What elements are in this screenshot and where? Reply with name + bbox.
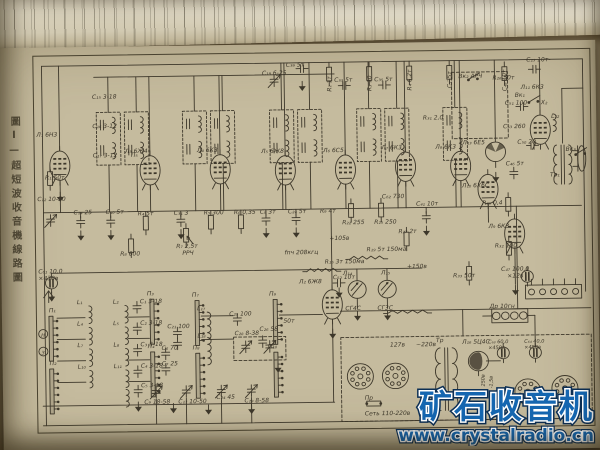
component-label: С₂₆ 58 <box>259 326 278 333</box>
component-label: С₃₅ 5т <box>374 76 393 83</box>
component-label: П₅ <box>131 152 139 159</box>
component-label: П₂ <box>50 360 58 367</box>
component-label: ×450в <box>488 345 505 351</box>
component-label: Вк₂ АРЧ <box>458 73 482 80</box>
component-label: Др 10гн <box>489 303 515 310</box>
watermark-url[interactable]: www.crystalradio.cn <box>398 426 594 446</box>
component-label: П₈ <box>193 344 201 351</box>
component-label: ×430в <box>38 275 59 282</box>
component-label: С₂₈ 8-38 <box>234 330 259 337</box>
figure-caption: 圖Ⅰ—超短波收音機線路圖 <box>6 116 23 286</box>
component-label: Л₁₅ <box>380 269 391 276</box>
component-label: С₄ 3-18 <box>141 362 163 369</box>
component-label: R₉ 4т <box>320 208 336 215</box>
component-label: П₃ <box>147 290 155 297</box>
component-label: R₁₆ 3т 150ма <box>325 258 365 265</box>
component-label: С₆₂ 730 <box>382 193 405 200</box>
component-label: С₁₇ 3-12 <box>93 152 118 159</box>
component-label: С₁₆ 3-12 <box>92 123 117 130</box>
component-label: 127в <box>390 342 406 349</box>
component-label: С₃₁ 3 <box>174 210 189 217</box>
component-label: СГ3С <box>377 305 394 312</box>
component-label: С₅₀ 20 <box>517 139 536 146</box>
watermark-title: 矿石收音机 <box>419 387 594 426</box>
component-label: R₂ 1т <box>326 76 333 92</box>
component-label: R₃ 10 <box>366 75 373 91</box>
component-label: R₂₆ 50т <box>492 74 515 81</box>
component-label: L₁ <box>77 299 83 306</box>
component-label: С₂₅ 100 <box>229 310 252 317</box>
component-label: Тр <box>436 337 444 344</box>
component-label: +105в <box>329 235 350 242</box>
component-label: R₃₂ 100 <box>495 242 518 249</box>
component-label: С₃ 3-18 <box>140 341 162 348</box>
component-label: Л₁₁ 6К3 <box>520 84 544 91</box>
component-label: С₆ 70 <box>162 345 178 352</box>
component-label: П₉ <box>269 291 277 298</box>
component-label: С₁₇ 10-50 <box>178 398 207 405</box>
component-label: С₁₀ 5т <box>106 209 125 216</box>
component-label: С₈ 3т <box>260 209 276 216</box>
component-label: R₁ 50т <box>45 174 65 181</box>
component-label: Вк₃ <box>566 146 577 153</box>
component-label: R₁₉ 5т 150ма <box>367 246 407 253</box>
component-label: С₅₂ 10т <box>333 274 356 281</box>
component-label: С₁₂ 10-50 <box>37 196 66 203</box>
component-label: Л₁₆ 5Ц4С <box>461 338 491 345</box>
component-label: Х₂ <box>540 99 548 106</box>
component-label: R₈ 600 <box>120 250 140 257</box>
component-label: С₂₃ 10т- <box>526 56 550 63</box>
component-label: С₄₁ 10т <box>416 200 439 207</box>
component-label: Л₆ 6С5 <box>322 147 344 154</box>
component-label: Тр₁ <box>550 171 561 178</box>
component-label: П₇ <box>192 292 200 299</box>
component-label: L₅ <box>113 320 119 327</box>
component-label: L₂ <box>113 299 119 306</box>
component-label: R₃₃ 50т <box>453 272 476 279</box>
component-label: Л₇ 6К3 <box>380 144 402 151</box>
watermark-svg: 矿石收音机 矿石收音机 www.crystalradio.cn www.crys… <box>364 382 600 446</box>
component-label: С₂₄ 45 <box>216 394 235 401</box>
component-label: L₈ <box>113 342 119 349</box>
component-label: С₁₅ 3-18 <box>92 94 117 101</box>
component-label: С₁₉ 6-25 <box>262 70 287 77</box>
component-label: +150в <box>407 263 428 270</box>
component-label: Л₁₃ 6Е5 <box>461 139 485 146</box>
watermark: 矿石收音机 矿石收音机 www.crystalradio.cn www.crys… <box>364 382 600 450</box>
component-label: R₅ 300 <box>204 209 224 216</box>
component-label: Л₁ 6Н3 <box>35 132 57 139</box>
schematic-frame: Л₁ 6Н3Л₃ 6Ж4Л₄ 6К3Л₅ 6Ж8Л₆ 6С5Л₇ 6К3Л₈ 6… <box>32 48 595 434</box>
component-label: Л₄ 6К3 <box>196 147 218 154</box>
component-label: R₃₁ 2,0 <box>423 114 444 121</box>
component-label: R₃₅ 0,4 <box>482 200 503 207</box>
component-label: L₁₀ <box>78 364 87 371</box>
component-label: С₅ 3-18 <box>141 382 163 389</box>
component-label: Л₁₀ 6Х6С <box>461 182 490 189</box>
component-label: R₄ 5т <box>138 210 154 217</box>
component-label: С₇′ 5т <box>446 71 453 88</box>
component-label: С₂₁ 100 <box>167 323 190 330</box>
component-label: С₅₁ 100 <box>505 100 528 107</box>
component-label: С₁ 3-18 <box>140 298 162 305</box>
component-label: R₂₅ 250 <box>374 219 397 226</box>
component-label: R₆ 0,35 <box>234 209 256 216</box>
component-label: С₂ 3-18 <box>140 320 162 327</box>
component-label: РРЧ <box>182 250 193 257</box>
photo-of-schematic-page: 圖Ⅰ—超短波收音機線路圖 Л₁ 6Н3Л₃ 6Ж4Л₄ 6К3Л₅ 6Ж8Л₆ … <box>0 0 600 450</box>
component-label: R₄ 6,2т <box>406 69 413 91</box>
component-label: L₇ <box>77 342 83 349</box>
component-label: С₇ 25 <box>162 360 178 367</box>
component-label: С₃₉ 5т <box>286 62 305 69</box>
component-label: С₉ 18-58 <box>144 399 170 406</box>
component-label: L₄ <box>77 321 83 328</box>
component-label: СГ4С <box>345 305 362 312</box>
component-label: L₁₇ <box>197 305 206 312</box>
component-label: С₃₃ 5т <box>334 77 353 84</box>
component-label: L₁₈ <box>197 333 206 340</box>
component-label: Л₈ 6К3 <box>434 144 456 151</box>
component-label: П₁₀ <box>268 343 278 350</box>
component-label: С₂₉ 8-58 <box>244 397 269 404</box>
component-label: 50т <box>283 318 295 325</box>
component-label: L₂₂ <box>551 113 560 120</box>
component-label: П₁ <box>49 307 57 314</box>
component-label: R₂₂ 255 <box>342 219 365 226</box>
component-label: ~220в <box>416 341 437 348</box>
component-label: Л₅ 6Ж8 <box>260 148 284 155</box>
component-label: С₄₆ 5т <box>506 160 525 167</box>
component-label: С₅₃ 260 <box>503 123 526 130</box>
component-label: ×450в <box>524 345 541 351</box>
component-label: ×12в <box>507 272 524 279</box>
component-label: Н <box>41 333 45 339</box>
component-label: Л₂ 6Ж8 <box>298 278 322 285</box>
component-label: fпч 208кгц <box>284 249 318 256</box>
component-label: Л₉ 6К3 <box>487 223 509 230</box>
schematic-drawing: Л₁ 6Н3Л₃ 6Ж4Л₄ 6К3Л₅ 6Ж8Л₆ 6С5Л₇ 6К3Л₈ 6… <box>33 49 594 433</box>
component-label: L₁₁ <box>114 363 123 370</box>
component-label: С₂₄ 5т <box>288 208 307 215</box>
component-label: С₁₄ 25 <box>74 209 93 216</box>
component-label: Вк₁ <box>515 92 526 99</box>
component-label: R₂₇ 2т <box>398 228 417 235</box>
